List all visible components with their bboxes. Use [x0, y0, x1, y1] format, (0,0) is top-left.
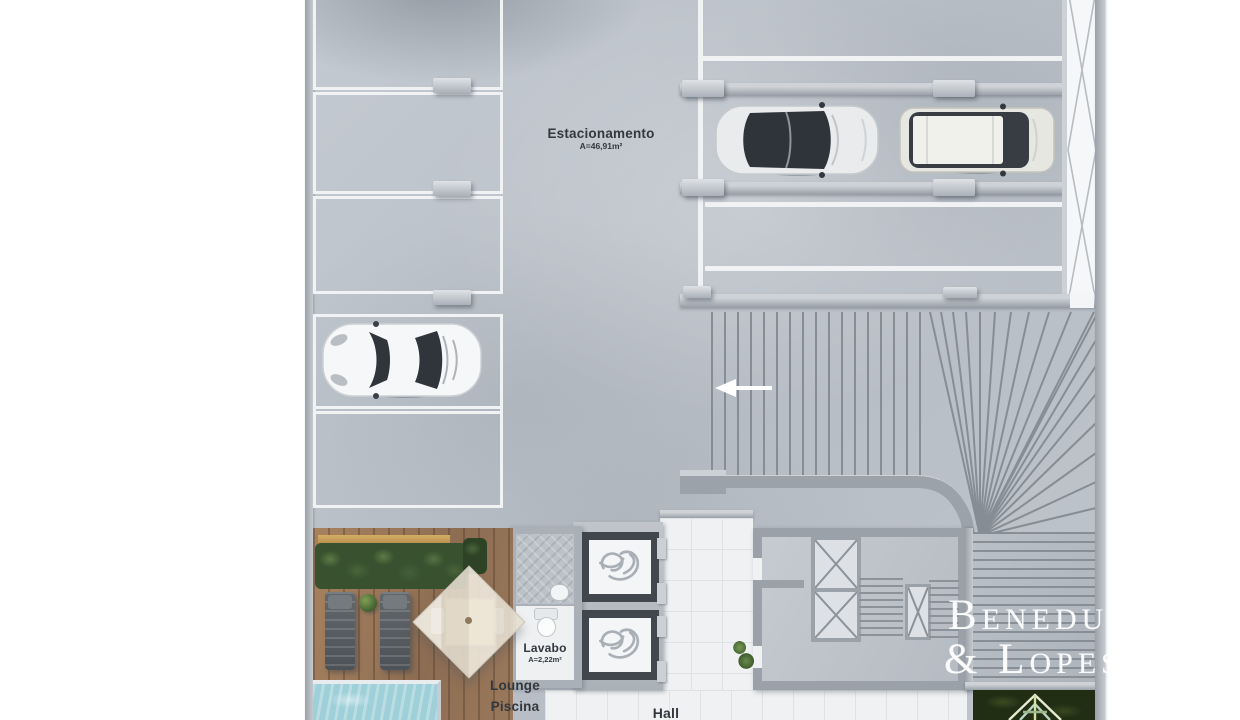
- room-label-lavabo: Lavabo A=2,22m²: [516, 642, 574, 664]
- core-inner-wall: [762, 580, 804, 588]
- garden-top-wall: [965, 682, 1095, 690]
- lavabo-room-floor: Lavabo A=2,22m²: [516, 606, 574, 680]
- shaft-x-braced: [811, 536, 861, 592]
- shaft-x-braced: [905, 584, 931, 640]
- lavabo-counter-wall: [516, 534, 574, 604]
- parking-beam: [680, 83, 1064, 95]
- door-jamb: [657, 616, 666, 637]
- hall-plant: [733, 640, 755, 670]
- parking-space: [313, 196, 503, 294]
- door-opening: [1070, 292, 1094, 308]
- stair-core: [753, 528, 967, 690]
- door-jamb: [657, 538, 666, 559]
- room-title: Estacionamento: [547, 126, 654, 141]
- wheel-stop: [683, 286, 711, 298]
- room-area: A=46,91m²: [521, 142, 681, 152]
- white-suv-car: [897, 103, 1057, 177]
- hall-floor-extension: [545, 690, 967, 720]
- watermark-brand: Beneduzi: [948, 594, 1147, 637]
- parking-line: [700, 56, 1065, 61]
- parasol-pole: [465, 617, 472, 624]
- parking-line: [705, 266, 1065, 271]
- wheel-stop: [433, 290, 471, 305]
- parking-beam: [680, 182, 1064, 194]
- wheel-stop: [943, 287, 977, 298]
- sink: [550, 584, 569, 601]
- watermark-brand: & Lopes: [944, 638, 1123, 681]
- hedge: [315, 543, 467, 589]
- elevator-logo-icon: [589, 618, 651, 672]
- elevator-cab-floor: [589, 540, 651, 594]
- sun-lounger: [380, 592, 410, 670]
- hall-top-wall: [660, 510, 753, 518]
- toilet-bowl: [537, 617, 556, 637]
- gate-x-bracing: [1067, 0, 1097, 302]
- elevator-logo-icon: [589, 540, 651, 594]
- door-jamb: [657, 661, 666, 682]
- elevator-block: [573, 522, 663, 690]
- room-label-hall: Hall: [636, 705, 696, 720]
- parking-space: [313, 406, 503, 508]
- wheel-stop: [682, 179, 724, 196]
- floor-plan-canvas: Estacionamento A=46,91m²: [0, 0, 1240, 720]
- pool: [313, 680, 441, 720]
- wheel-stop: [933, 179, 975, 196]
- lavabo-block: Lavabo A=2,22m²: [510, 526, 582, 688]
- door-jamb: [657, 583, 666, 604]
- wheel-stop: [433, 78, 471, 93]
- elevator-cab-floor: [589, 618, 651, 672]
- elevator-shaft: [581, 532, 659, 602]
- shaft-x-braced: [811, 588, 861, 642]
- parking-space: [313, 0, 503, 90]
- potted-plant: [359, 594, 377, 612]
- wheel-stop: [433, 181, 471, 196]
- ramp-fan: [680, 306, 1097, 532]
- wheel-stop: [933, 80, 975, 97]
- room-label-estacionamento: Estacionamento A=46,91m²: [521, 126, 681, 151]
- parking-line: [705, 202, 1065, 207]
- sun-lounger: [325, 592, 355, 670]
- stair-treads: [859, 578, 903, 640]
- left-boundary-wall: [305, 0, 313, 720]
- elevator-shaft: [581, 610, 659, 680]
- garden: [973, 690, 1095, 720]
- parking-space: [313, 92, 503, 194]
- core-door-opening: [753, 558, 762, 580]
- wheel-stop: [682, 80, 724, 97]
- white-coupe-car: [319, 318, 487, 402]
- silver-sedan-car: [712, 101, 882, 179]
- room-label-lounge-piscina: Lounge Piscina: [477, 676, 553, 718]
- x-brace-icon: [1067, 0, 1097, 302]
- parking-line: [698, 0, 703, 290]
- pavilion-icon: [973, 690, 1095, 720]
